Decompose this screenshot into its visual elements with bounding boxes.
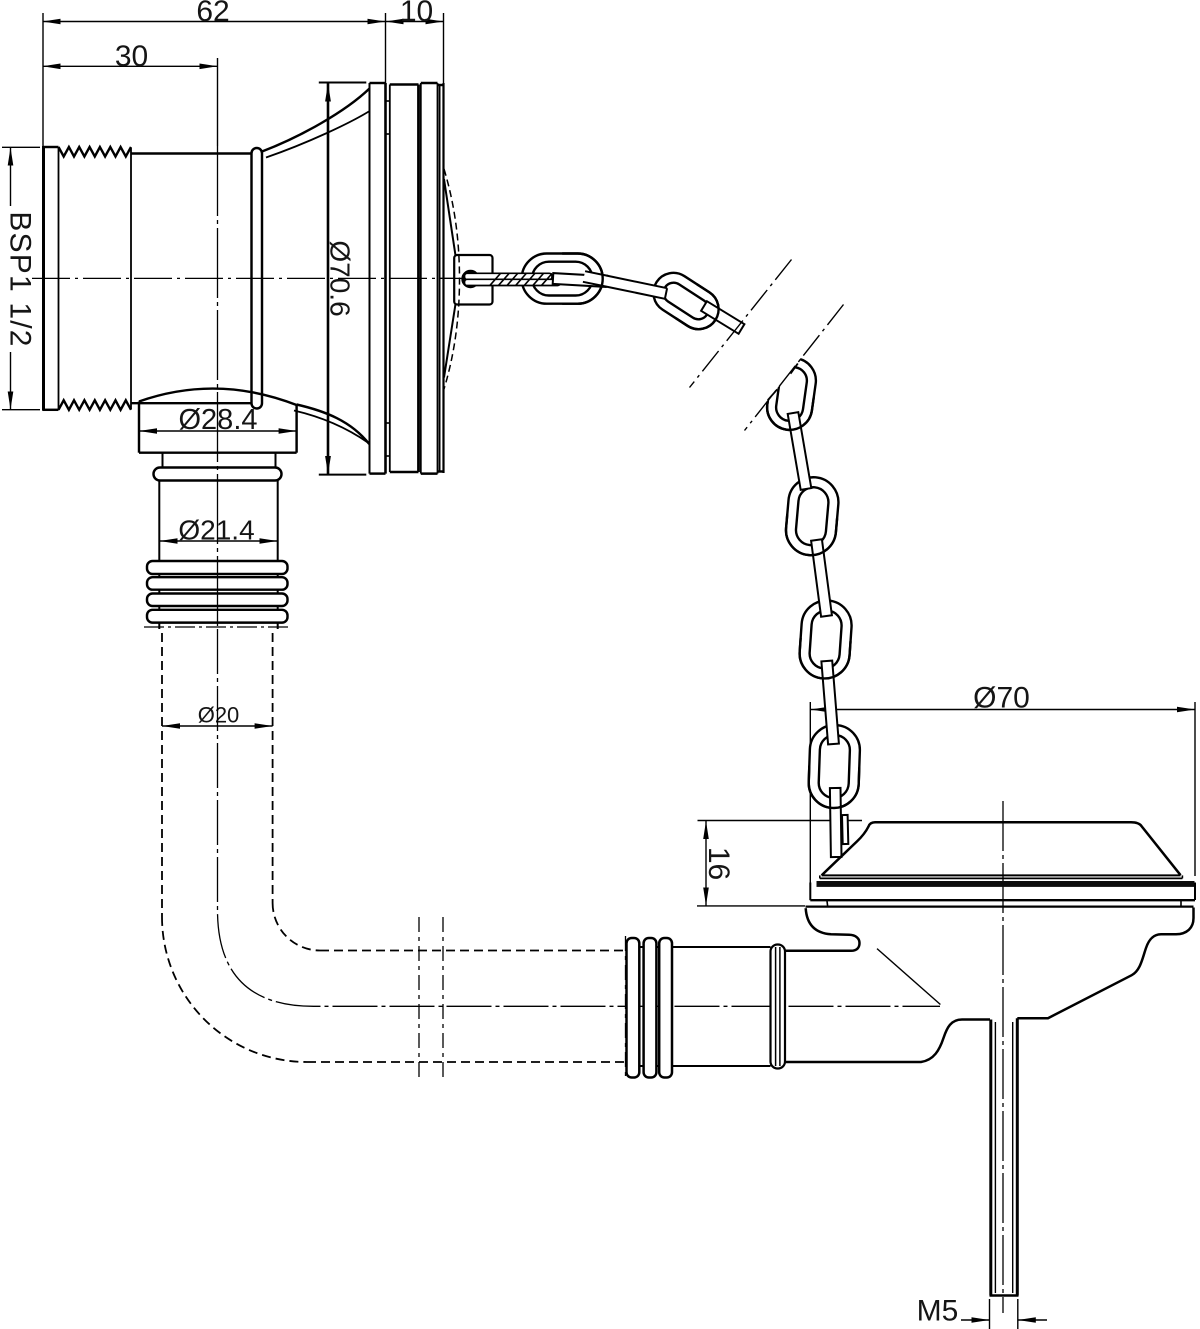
svg-text:16: 16 — [702, 847, 735, 880]
svg-text:M5: M5 — [917, 1295, 959, 1328]
svg-text:BSP1 1/2: BSP1 1/2 — [4, 211, 37, 347]
svg-text:30: 30 — [115, 40, 148, 73]
svg-text:Ø21.4: Ø21.4 — [178, 515, 254, 546]
svg-text:62: 62 — [196, 0, 229, 28]
svg-text:Ø20: Ø20 — [198, 703, 240, 728]
svg-text:10: 10 — [400, 0, 433, 28]
svg-text:Ø70: Ø70 — [973, 682, 1030, 715]
